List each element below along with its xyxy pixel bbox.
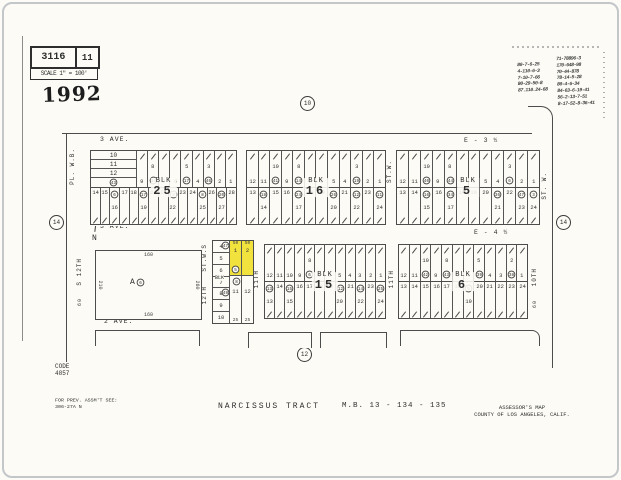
lot-number: 20	[483, 190, 489, 195]
assessor-map-sheet: 3116 11 SCALE 1" = 100' 1992 N 80-7-6-25…	[0, 0, 621, 480]
lot-10: 10	[284, 245, 294, 281]
lot-13: 13	[399, 282, 409, 318]
lot-21: 2136	[491, 188, 503, 224]
lot-tick-icon	[273, 153, 278, 159]
street-label-s12th: S 12TH	[76, 258, 83, 286]
lot-4: 4	[192, 151, 203, 187]
lot-22: 2212	[350, 188, 362, 224]
lot-20: 20	[479, 188, 491, 224]
lot-number: 26	[209, 190, 215, 195]
lot-number: 1	[378, 179, 381, 184]
small-block: 447567849910 1502505 112512258 BLK	[212, 240, 254, 324]
lot-28: 28	[226, 188, 236, 224]
block-5: 1211104098447654362113141516161734181920…	[396, 150, 540, 226]
avenue-label-1-right: E - 3 ½	[464, 137, 498, 144]
lot-number: 2	[510, 258, 513, 263]
street-label-stw-right: ST. W.	[541, 172, 548, 200]
parcel-circle: 46	[205, 177, 213, 185]
lot-15: 1515	[284, 282, 294, 318]
lot-number: 21	[495, 205, 501, 210]
lot-tick-icon	[348, 247, 353, 253]
lot-tick-icon	[342, 217, 347, 223]
lot-number: 17	[121, 190, 127, 195]
lot-1: 1	[527, 151, 539, 187]
lot-17: 1734	[444, 188, 456, 224]
lot-4: 4	[345, 245, 355, 281]
lot-number: 20	[337, 299, 343, 304]
block-label: BLK5	[457, 178, 479, 197]
junction-circle-top: 10	[300, 96, 315, 111]
lot-tick-icon	[217, 153, 222, 159]
block-number: 5	[463, 185, 473, 197]
parcel-circle: 39	[475, 271, 483, 279]
lot-22: 2214	[355, 282, 365, 318]
lot-25: 258	[197, 188, 207, 224]
lot-number: 23	[508, 284, 514, 289]
lot-number: 21	[487, 284, 493, 289]
prev-assessment-note: FOR PREV. ASSM'T SEE: 306-27A N	[55, 398, 117, 410]
lot-10: 10	[213, 312, 229, 323]
lot-number: 9	[437, 179, 440, 184]
lot-number: 3	[207, 164, 210, 169]
lot-number: 16	[284, 190, 290, 195]
junction-circle-left: 14	[49, 215, 64, 230]
lot-5: 5	[213, 253, 229, 265]
lot-tick-icon	[151, 153, 156, 159]
lot-number: 2	[369, 273, 372, 278]
lot-24: 243	[527, 188, 539, 224]
lot-16: 16	[430, 282, 441, 318]
lot-tick-icon	[296, 153, 301, 159]
lot-number: 14	[261, 205, 267, 210]
lot-tick-icon	[377, 217, 382, 223]
lot-tick-icon	[327, 311, 332, 317]
stamp-dotted-line	[512, 46, 600, 48]
lot-number: 13	[401, 284, 407, 289]
assessor-line2: COUNTY OF LOS ANGELES, CALIF.	[452, 411, 592, 418]
parcel-a-dim-right: 260	[194, 280, 200, 289]
lot-tick-icon	[209, 217, 214, 223]
lot-11: 11	[408, 151, 420, 187]
street-label-stw-mid: ST.W.	[386, 160, 393, 183]
lot-tick-icon	[331, 217, 336, 223]
lot-tick-icon	[190, 217, 195, 223]
small-block-lower-lots: 112512258	[230, 276, 253, 323]
lot-number: 11	[411, 273, 417, 278]
lot-10: 1042	[420, 245, 431, 281]
lot-dim: 25	[233, 318, 238, 323]
lot-number: 22	[497, 284, 503, 289]
mini-column-circle: 43	[91, 178, 136, 187]
parcel-circle: 34	[446, 191, 454, 199]
lot-tick-icon	[423, 247, 428, 253]
block-number: 16	[306, 185, 326, 197]
lot-tick-icon	[498, 247, 503, 253]
lot-tick-icon	[477, 247, 482, 253]
lot-tick-icon	[466, 247, 471, 253]
lot-17: 17	[119, 188, 129, 224]
lot-13: 1313	[265, 282, 274, 318]
lot-2: 238	[506, 245, 517, 281]
lot-tick-icon	[401, 247, 406, 253]
lot-tick-icon	[519, 153, 524, 159]
lot-number: 10	[422, 258, 428, 263]
map-boundary-corner	[528, 106, 553, 121]
avenue-label-2-right: E - 4 ½	[474, 229, 508, 236]
parcel-a-label: A	[130, 278, 135, 287]
lot-15: 15	[420, 282, 431, 318]
lot-15: 1516	[420, 188, 432, 224]
lot-16: 16	[432, 188, 444, 224]
lot-tick-icon	[498, 311, 503, 317]
lot-number: 12	[401, 273, 407, 278]
lot-3: 346	[203, 151, 214, 187]
lot-1: 1	[375, 245, 385, 281]
lot-tick-icon	[171, 217, 176, 223]
lot-11: 11	[409, 245, 420, 281]
lot-tick-icon	[219, 217, 224, 223]
street-label-pl-wb: PL. W.B.	[69, 148, 76, 185]
parcel-circle: 44	[446, 177, 454, 185]
street-dim-s12th: 60	[77, 298, 83, 306]
lot-tick-icon	[307, 311, 312, 317]
lot-tick-icon	[297, 311, 302, 317]
lot-tick-icon	[460, 153, 465, 159]
lot-8: 844	[444, 151, 456, 187]
lot-2: 2	[214, 151, 225, 187]
lot-dim: 25	[245, 318, 250, 323]
lot-14: 14	[408, 188, 420, 224]
lot-number: 4	[488, 273, 491, 278]
lot-tick-icon	[366, 153, 371, 159]
lot-number: 13	[249, 190, 255, 195]
lot-number: 10	[423, 164, 429, 169]
lot-dim: 50	[245, 241, 250, 246]
parcel-circle: 43	[110, 179, 118, 187]
lot-tick-icon	[184, 153, 189, 159]
parcel-circle: 18	[260, 191, 268, 199]
map-book-reference: M.B. 13 - 134 - 135	[342, 402, 447, 410]
lot-tick-icon	[93, 217, 98, 223]
lot-number: 15	[423, 205, 429, 210]
lot-number: 17	[444, 284, 450, 289]
lot-number: 20	[330, 205, 336, 210]
mini-column: 10111243	[91, 151, 137, 187]
lot-number: 22	[357, 299, 363, 304]
parcel-a-dim-top: 160	[144, 252, 153, 258]
lot-22: 22	[503, 188, 515, 224]
lot-number: 15	[286, 299, 292, 304]
parcel-circle: 47	[518, 191, 526, 199]
lot-11: 11	[274, 245, 284, 281]
lot-number: 20	[476, 284, 482, 289]
lot-tick-icon	[327, 247, 332, 253]
lot-26: 26	[207, 188, 217, 224]
lot-20: 20	[473, 282, 484, 318]
lot-number: 24	[376, 205, 382, 210]
lot-10: 1041	[269, 151, 281, 187]
lot-tick-icon	[400, 217, 405, 223]
lot-tick-icon	[424, 217, 429, 223]
lot-11: 11	[91, 160, 136, 169]
lot-3: 36	[503, 151, 515, 187]
street-label-10th: 10TH	[531, 268, 538, 286]
block-number: 25	[153, 185, 173, 197]
lot-number: 16	[435, 190, 441, 195]
parcel-circle: 49	[222, 289, 230, 297]
lot-3: 319	[350, 151, 362, 187]
lot-tick-icon	[366, 217, 371, 223]
block-label: BLK15	[312, 272, 338, 291]
scale-label: SCALE 1" = 100'	[30, 67, 98, 80]
lot-tick-icon	[195, 153, 200, 159]
lot-tick-icon	[448, 217, 453, 223]
lot-tick-icon	[400, 153, 405, 159]
prev-assessment-line2: 306-27A N	[55, 404, 117, 410]
lot-23: 23	[362, 188, 374, 224]
partial-block-4	[400, 330, 540, 346]
street-dim-10th: 60	[532, 300, 538, 308]
lot-tick-icon	[151, 217, 156, 223]
lot-tick-icon	[132, 217, 137, 223]
lot-24: 2411	[373, 188, 385, 224]
lot-5: 539	[473, 245, 484, 281]
lot-10: 1040	[420, 151, 432, 187]
lot-tick-icon	[444, 311, 449, 317]
parcel-circle: 17	[183, 177, 191, 185]
lot-24: 24	[187, 188, 197, 224]
lot-3: 3	[495, 245, 506, 281]
lot-2: 2	[365, 245, 375, 281]
lot-tick-icon	[348, 311, 353, 317]
lot-number: 2	[366, 179, 369, 184]
lot-tick-icon	[331, 153, 336, 159]
parcel-circle: 11	[376, 191, 384, 199]
lot-number: 5	[477, 258, 480, 263]
lot-12: 12	[397, 151, 408, 187]
parcel-circle: 24	[295, 191, 303, 199]
lot-tick-icon	[520, 311, 525, 317]
lot-10: 10	[91, 151, 136, 160]
code-value: 4857	[55, 370, 69, 377]
lot-9: 9	[294, 245, 304, 281]
lot-tick-icon	[460, 217, 465, 223]
lot-tick-icon	[277, 311, 282, 317]
parcel-circle: 40	[422, 177, 430, 185]
lot-number: 24	[530, 205, 536, 210]
lot-12: 12	[91, 169, 136, 178]
map-boundary-left	[66, 133, 67, 362]
lot-1: 1	[373, 151, 385, 187]
lot-tick-icon	[378, 247, 383, 253]
lot-number: 12	[266, 273, 272, 278]
lot-number: 2	[520, 179, 523, 184]
lot-number: 2	[218, 179, 221, 184]
block-16: 1211104198147654319211314181516172418192…	[246, 150, 386, 226]
small-block-blk-label: BLK	[215, 275, 224, 281]
revision-stamp-left: 80-7-6-254-110-6-37-10-7-6680-29-50-887.…	[517, 61, 548, 94]
lot-4: 447	[213, 241, 229, 253]
lot-number: 28	[228, 190, 234, 195]
lot-tick-icon	[122, 217, 127, 223]
lot-number: 17	[447, 205, 453, 210]
stamp-line: 87.110.24-68	[518, 87, 548, 94]
lot-tick-icon	[287, 311, 292, 317]
parcel-circle: 8	[198, 191, 206, 199]
lot-number: 17	[295, 205, 301, 210]
lot-tick-icon	[377, 153, 382, 159]
lot-tick-icon	[436, 217, 441, 223]
lot-number: 1	[520, 273, 523, 278]
lot-tick-icon	[423, 311, 428, 317]
lot-11: 11	[258, 151, 270, 187]
lot-tick-icon	[444, 247, 449, 253]
parcel-circle: 19	[353, 177, 361, 185]
lot-tick-icon	[487, 247, 492, 253]
assessor-line1: ASSESSOR'S MAP	[452, 404, 592, 411]
lot-23: 23	[506, 282, 517, 318]
lot-tick-icon	[401, 311, 406, 317]
lot-number: 5	[332, 179, 335, 184]
block-number: 6	[458, 279, 468, 291]
lot-12: 12	[265, 245, 274, 281]
lot-number: 1	[532, 179, 535, 184]
lot-number: 16	[111, 205, 117, 210]
block-label: BLK16	[303, 178, 329, 197]
lot-15: 15	[269, 188, 281, 224]
lot-21: 21	[345, 282, 355, 318]
year-stamp: 1992	[42, 81, 102, 107]
lot-tick-icon	[273, 217, 278, 223]
block-15: 1211109867654321131314151516171819201221…	[264, 244, 386, 320]
lot-number: 25	[199, 205, 205, 210]
lot-number: 4	[196, 179, 199, 184]
lot-tick-icon	[483, 153, 488, 159]
block-label: BLK25	[150, 178, 176, 197]
parcel-circle: 43	[443, 271, 451, 279]
parcel-circle: 3	[530, 191, 538, 199]
lot-number: 9	[285, 179, 288, 184]
lot-number: 21	[347, 284, 353, 289]
lot-number: 19	[141, 205, 147, 210]
lot-23: 2347	[515, 188, 527, 224]
lot-number: 22	[507, 190, 513, 195]
lot-8: 843	[441, 245, 452, 281]
lot-tick-icon	[206, 153, 211, 159]
lot-tick-icon	[319, 217, 324, 223]
lot-tick-icon	[287, 247, 292, 253]
lot-19: 1917	[138, 188, 148, 224]
lot-number: 27	[219, 205, 225, 210]
junction-circle-bottom: 12	[297, 347, 312, 362]
lot-9: 9	[281, 151, 293, 187]
lot-4: 4	[339, 151, 351, 187]
lot-tick-icon	[338, 247, 343, 253]
lot-22: 22	[495, 282, 506, 318]
street-label-12th: 12TH	[201, 286, 208, 304]
lot-2: 2	[515, 151, 527, 187]
tract-name: NARCISSUS TRACT	[218, 402, 320, 411]
lot-tick-icon	[141, 217, 146, 223]
lot-number: 10	[286, 273, 292, 278]
lot-number: 3	[355, 164, 358, 169]
lot-number: 5	[484, 179, 487, 184]
block-25: 1011124398447651743462114151661718191720…	[90, 150, 237, 226]
lot-number: 13	[399, 190, 405, 195]
highlighted-lot-2: 250	[241, 241, 253, 275]
lot-18: 18	[129, 188, 139, 224]
lot-tick-icon	[261, 217, 266, 223]
lot-number: 14	[411, 190, 417, 195]
lot-tick-icon	[477, 311, 482, 317]
lot-12: 12	[399, 245, 409, 281]
junction-circle-right: 14	[556, 215, 571, 230]
assessor-attribution: ASSESSOR'S MAP COUNTY OF LOS ANGELES, CA…	[452, 404, 592, 418]
revision-stamp-right: 71-78896-3170-648-9870-44-87878-14-5-288…	[556, 55, 595, 107]
lot-tick-icon	[250, 153, 255, 159]
lot-tick-icon	[250, 217, 255, 223]
lot-tick-icon	[284, 153, 289, 159]
lot-tick-icon	[139, 153, 144, 159]
lot-number: 10	[272, 164, 278, 169]
lot-tick-icon	[531, 153, 536, 159]
parcel-circle: 36	[494, 191, 502, 199]
lot-tick-icon	[412, 311, 417, 317]
parcel-circle: 47	[222, 242, 230, 250]
lot-5: 517	[180, 151, 191, 187]
lot-number: 12	[399, 179, 405, 184]
highlighted-parcels: 1502505	[230, 241, 253, 276]
lot-number: 8	[152, 164, 155, 169]
parcel-circle: 14	[295, 177, 303, 185]
street-label-11th-left: 11TH	[253, 270, 260, 288]
lot-number: 24	[377, 299, 383, 304]
lot-2: 2	[362, 151, 374, 187]
parcel-circle: 42	[422, 271, 430, 279]
lot-tick-icon	[277, 247, 282, 253]
lot-number: 5	[338, 273, 341, 278]
lot-tick-icon	[161, 217, 166, 223]
lot-number: 18	[131, 190, 137, 195]
lot-tick-icon	[319, 153, 324, 159]
lot-tick-icon	[102, 217, 107, 223]
lot-tick-icon	[434, 247, 439, 253]
lot-tick-icon	[296, 217, 301, 223]
sheet-number-box: 3116 11	[30, 46, 100, 69]
lot-tick-icon	[424, 153, 429, 159]
lot-tick-icon	[520, 247, 525, 253]
lot-14: 1418	[258, 188, 270, 224]
code-block: CODE 4857	[55, 363, 69, 377]
lot-tick-icon	[455, 311, 460, 317]
lot-tick-icon	[436, 153, 441, 159]
lot-number: 21	[342, 190, 348, 195]
lot-tick-icon	[412, 247, 417, 253]
parcel-circle: 6	[506, 177, 514, 185]
margin-line-left	[22, 36, 23, 341]
parcel-circle: 20	[218, 191, 226, 199]
lot-tick-icon	[507, 153, 512, 159]
lot-13: 13	[397, 188, 408, 224]
lot-number: 9	[140, 179, 143, 184]
lot-tick-icon	[342, 153, 347, 159]
code-label: CODE	[55, 363, 69, 370]
lot-tick-icon	[297, 247, 302, 253]
parcel-circle: 6	[111, 191, 119, 199]
lot-number: 23	[367, 284, 373, 289]
lot-tick-icon	[368, 247, 373, 253]
lot-number: 15	[102, 190, 108, 195]
